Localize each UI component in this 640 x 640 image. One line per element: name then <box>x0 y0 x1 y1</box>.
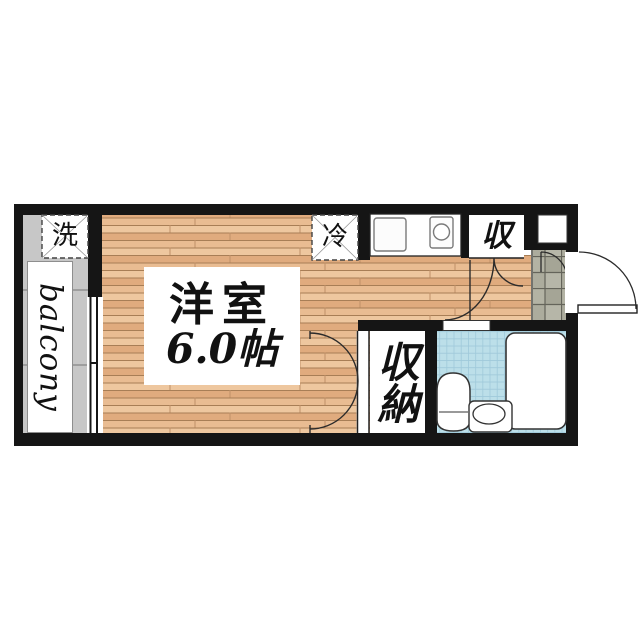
shoe-cabinet-shelf <box>538 243 567 250</box>
wall-bottom <box>14 433 578 446</box>
bathroom-door <box>443 321 490 331</box>
wall-counter-storage <box>461 215 469 258</box>
wall-room-kitchen <box>358 215 370 260</box>
wall-right-upper <box>566 204 578 252</box>
fridge-label: 冷 <box>312 214 358 260</box>
main-room-size: 6.0帖 <box>166 329 278 370</box>
floor-plan-page: 洗 balcony 洋室 6.0帖 冷 収 収納 <box>0 0 640 640</box>
wall-left <box>14 204 23 446</box>
entrance-door-leaf <box>578 305 637 313</box>
upper-storage-label: 収 <box>469 214 524 258</box>
toilet <box>437 373 470 431</box>
balcony-label: balcony <box>27 261 73 433</box>
shoe-cabinet <box>538 215 567 243</box>
kitchen-sink <box>374 218 406 251</box>
kitchen-corridor-floor <box>370 255 531 320</box>
balcony-window-gap <box>87 297 103 433</box>
wall-corridor-south-right <box>490 320 578 331</box>
floor-plan-svg <box>0 0 640 640</box>
entrance-door-arc <box>579 252 636 309</box>
wall-balcony-room <box>88 215 102 297</box>
washer-label: 洗 <box>42 214 88 258</box>
wall-storage-cabinet <box>524 215 538 250</box>
closet-label: 収納 <box>366 332 424 432</box>
washbasin-bowl <box>473 404 505 424</box>
wall-closet-bath <box>425 320 437 433</box>
bathtub <box>506 333 566 429</box>
washbasin <box>469 401 512 432</box>
wall-right-lower <box>566 313 578 446</box>
main-room-name: 洋室 <box>169 282 275 327</box>
kitchen-counter <box>370 214 461 256</box>
genkan-tile-floor <box>533 250 566 320</box>
entrance-door-gap <box>565 252 579 313</box>
stove-burner <box>434 224 450 240</box>
main-room-label: 洋室 6.0帖 <box>144 267 300 385</box>
